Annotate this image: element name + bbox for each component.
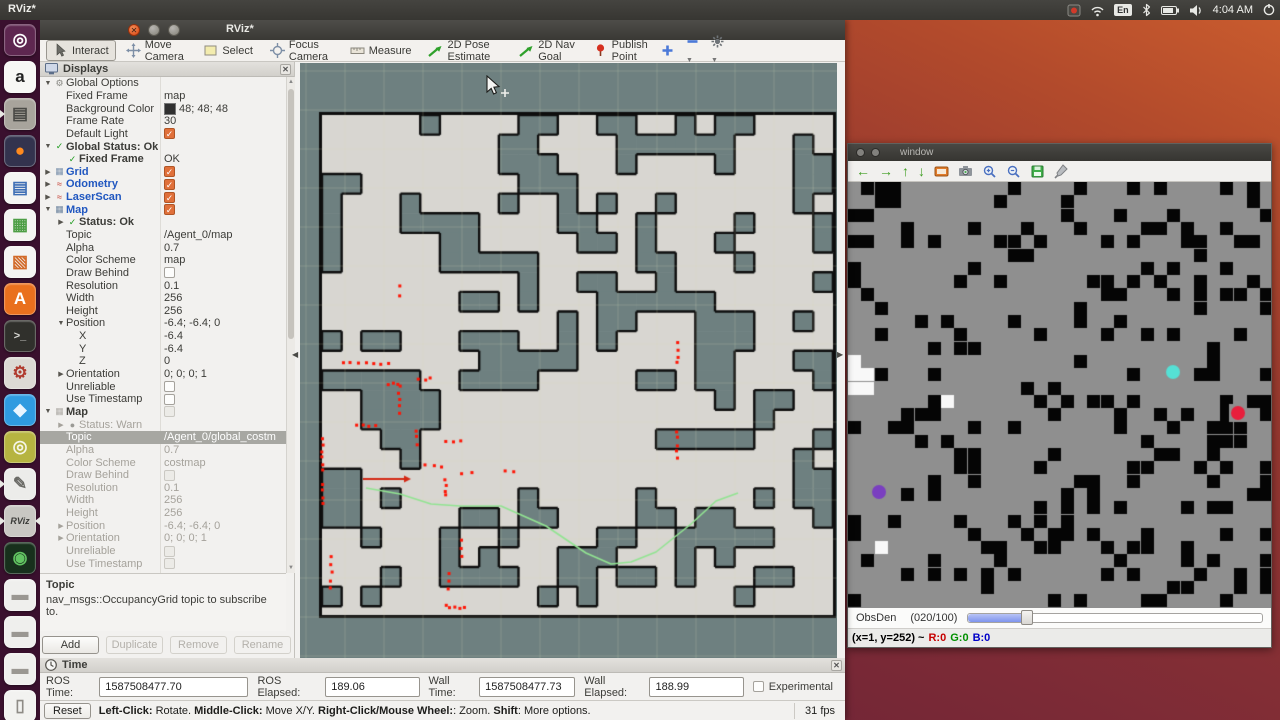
- experimental-label: Experimental: [769, 681, 833, 693]
- value-text: 256: [164, 494, 182, 506]
- left-arrow-icon[interactable]: ←: [856, 164, 870, 178]
- displays-panel-header[interactable]: Displays ✕: [40, 62, 294, 77]
- camera-lens-icon: ◉: [4, 542, 36, 574]
- tool-publish-point[interactable]: Publish Point: [586, 36, 657, 66]
- obsden-slider-fill: [968, 614, 1027, 622]
- value-text: map: [164, 254, 185, 266]
- ros-time-input[interactable]: 1587508477.70: [99, 677, 248, 697]
- launcher-item-files[interactable]: ▤: [3, 97, 37, 131]
- displays-panel-title: Displays: [63, 63, 108, 75]
- tree-row-fixed-frame[interactable]: ✓Fixed FrameOK: [40, 153, 286, 166]
- launcher-item-libreoffice-calc[interactable]: ▦: [3, 208, 37, 242]
- rviz-window: ✕ RViz* InteractMove CameraSelectFocus C…: [40, 20, 845, 720]
- launcher-item-disk-drive-1[interactable]: ▬: [3, 578, 37, 612]
- property-label: Default Light: [66, 128, 128, 140]
- property-label: Orientation: [66, 532, 120, 544]
- cv-window-button-2[interactable]: [871, 148, 880, 157]
- pose-estimate-icon: [428, 43, 443, 58]
- rename-button: Rename: [234, 636, 291, 654]
- value-text: 0; 0; 0; 1: [164, 532, 207, 544]
- check-icon: ✓: [66, 154, 79, 165]
- property-label: LaserScan: [66, 191, 122, 203]
- property-label: Topic: [66, 229, 92, 241]
- checkbox-checked[interactable]: ✓: [164, 204, 175, 215]
- displays-panel: Displays ✕ ▼⚙Global OptionsFixed Framema…: [40, 62, 295, 678]
- help-segment: Move X/Y.: [263, 705, 318, 717]
- tree-row-alpha[interactable]: Alpha0.7: [40, 444, 286, 457]
- expander-open-icon[interactable]: ▼: [43, 80, 53, 87]
- launcher-item-disk-drive-3[interactable]: ▬: [3, 652, 37, 686]
- property-label: Map: [66, 406, 88, 418]
- tree-row-status-ok[interactable]: ▶✓Status: Ok: [40, 216, 286, 229]
- tree-row-unreliable[interactable]: Unreliable: [40, 545, 286, 558]
- property-value[interactable]: map: [164, 254, 185, 266]
- disk-drive-1-icon: ▬: [4, 579, 36, 611]
- property-value[interactable]: map: [164, 90, 185, 102]
- value-text: 30: [164, 115, 176, 127]
- value-text: 0.7: [164, 444, 179, 456]
- tool-label: Focus Camera: [289, 39, 333, 63]
- tool-pose-estimate[interactable]: 2D Pose Estimate: [421, 36, 509, 66]
- pixel-red-value: R:0: [928, 632, 946, 644]
- value-text: 0: [164, 355, 170, 367]
- tree-row-height[interactable]: Height256: [40, 507, 286, 520]
- launcher-item-vscode[interactable]: ◆: [3, 393, 37, 427]
- obsden-slider-handle[interactable]: [1021, 610, 1033, 625]
- value-text: -6.4: [164, 343, 183, 355]
- checkbox-disabled: [164, 546, 175, 557]
- time-fields-row: ROS Time:1587508477.70ROS Elapsed:189.06…: [40, 673, 845, 700]
- zoom-in-icon[interactable]: [982, 164, 997, 179]
- time-panel: Time ✕ ROS Time:1587508477.70ROS Elapsed…: [40, 658, 845, 700]
- map-icon: ▦: [53, 204, 66, 215]
- pixel-blue-value: B:0: [973, 632, 991, 644]
- tree-row-orientation[interactable]: ▶Orientation0; 0; 0; 1: [40, 532, 286, 545]
- tool-label: Select: [222, 45, 253, 57]
- tool-nav-goal[interactable]: 2D Nav Goal: [512, 36, 582, 66]
- interact-icon: [53, 43, 68, 58]
- ubuntu-software-icon: A: [4, 283, 36, 315]
- tree-row-topic[interactable]: Topic/Agent_0/global_costm: [40, 431, 286, 444]
- expander-closed-icon[interactable]: ▶: [56, 522, 66, 530]
- property-value[interactable]: 0.1: [164, 280, 179, 292]
- running-indicator: [0, 517, 5, 525]
- property-help-box: Topic nav_msgs::OccupancyGrid topic to s…: [40, 573, 286, 631]
- trash-icon: ▯: [4, 690, 36, 720]
- wall-time-input[interactable]: 1587508477.73: [479, 677, 575, 697]
- remove-button: Remove: [170, 636, 227, 654]
- expander-open-icon[interactable]: ▼: [56, 320, 66, 327]
- property-label: Width: [66, 494, 94, 506]
- property-value[interactable]: [164, 406, 175, 417]
- property-label: Width: [66, 292, 94, 304]
- tool-focus-camera[interactable]: Focus Camera: [263, 36, 340, 66]
- property-value[interactable]: 256: [164, 292, 182, 304]
- ubuntu-dash-icon: ◎: [4, 24, 36, 56]
- property-label: Use Timestamp: [66, 558, 142, 570]
- cv-toolbar: ←→↑↓: [848, 161, 1271, 182]
- maximize-button[interactable]: [168, 24, 180, 36]
- property-value[interactable]: [164, 381, 175, 392]
- checkbox-unchecked[interactable]: [164, 394, 175, 405]
- clock-icon: [44, 658, 58, 672]
- property-value[interactable]: 0.7: [164, 242, 179, 254]
- value-text: 0; 0; 0; 1: [164, 368, 207, 380]
- duplicate-button: Duplicate: [106, 636, 163, 654]
- tree-row-map[interactable]: ▼▦Map✓: [40, 203, 286, 216]
- tree-row-default-light[interactable]: Default Light✓: [40, 128, 286, 141]
- expander-closed-icon[interactable]: ▶: [43, 180, 53, 188]
- tree-row-frame-rate[interactable]: Frame Rate30: [40, 115, 286, 128]
- expander-open-icon[interactable]: ▼: [43, 206, 53, 213]
- checkbox-checked[interactable]: ✓: [164, 166, 175, 177]
- property-value[interactable]: -6.4; -6.4; 0: [164, 520, 220, 532]
- launcher-item-libreoffice-writer[interactable]: ▤: [3, 171, 37, 205]
- ros-time-label: ROS Time:: [46, 675, 95, 699]
- ros-elapsed-input[interactable]: 189.06: [325, 677, 419, 697]
- expander-closed-icon[interactable]: ▶: [56, 534, 66, 542]
- running-indicator: [0, 110, 5, 118]
- global-menu-app-title[interactable]: RViz*: [8, 3, 36, 15]
- value-text: /Agent_0/map: [164, 229, 233, 241]
- cv-window: window ←→↑↓ ObsDen (020/100) (x=1, y=252…: [847, 143, 1272, 648]
- expander-closed-icon[interactable]: ▶: [56, 218, 66, 226]
- property-label: Alpha: [66, 444, 94, 456]
- disk-drive-3-icon: ▬: [4, 653, 36, 685]
- files-icon: ▤: [4, 98, 36, 130]
- property-value[interactable]: /Agent_0/map: [164, 229, 233, 241]
- keyboard-layout-indicator[interactable]: En: [1114, 4, 1132, 16]
- color-value-text: 48; 48; 48: [179, 103, 228, 115]
- nav-goal-icon: [519, 43, 534, 58]
- tree-row-x[interactable]: X-6.4: [40, 330, 286, 343]
- unity-top-panel: RViz* En 4:04 AM: [0, 0, 1280, 20]
- property-value[interactable]: [164, 267, 175, 278]
- cv-status-bar: (x=1, y=252) ~ R:0 G:0 B:0: [848, 628, 1271, 647]
- tree-row-status-warn[interactable]: ▶●Status: Warn: [40, 418, 286, 431]
- select-icon: [203, 43, 218, 58]
- wall-time-label: Wall Time:: [429, 675, 476, 699]
- tree-row-resolution[interactable]: Resolution0.1: [40, 482, 286, 495]
- property-label: Resolution: [66, 280, 118, 292]
- checkbox-checked[interactable]: ✓: [164, 128, 175, 139]
- battery-icon[interactable]: [1161, 5, 1180, 16]
- scroll-down-icon[interactable]: ▼: [287, 565, 295, 571]
- measure-icon: [350, 43, 365, 58]
- property-label: Position: [66, 317, 105, 329]
- property-label: Height: [66, 507, 98, 519]
- screenshot-tool-icon: ◎: [4, 431, 36, 463]
- help-segment: Shift: [493, 705, 517, 717]
- save-icon[interactable]: [1030, 164, 1045, 179]
- zoom-out-icon[interactable]: [1006, 164, 1021, 179]
- dock-collapse-left-icon[interactable]: ◀: [292, 350, 298, 359]
- 3d-viewport[interactable]: [300, 63, 837, 659]
- value-text: 256: [164, 292, 182, 304]
- tree-row-position[interactable]: ▶Position-6.4; -6.4; 0: [40, 519, 286, 532]
- rviz-icon: RViz: [4, 505, 36, 537]
- launcher-item-system-settings[interactable]: ⚙: [3, 356, 37, 390]
- property-label: Unreliable: [66, 545, 116, 557]
- brush-icon[interactable]: [1054, 164, 1069, 179]
- tree-row-global-status-ok[interactable]: ▼✓Global Status: Ok: [40, 140, 286, 153]
- tree-row-map[interactable]: ▼▦Map: [40, 406, 286, 419]
- property-label: Map: [66, 204, 88, 216]
- property-value[interactable]: OK: [164, 153, 180, 165]
- property-value[interactable]: ✓: [164, 179, 175, 190]
- property-label: Draw Behind: [66, 469, 129, 481]
- cv-window-button-1[interactable]: [856, 148, 865, 157]
- expander-closed-icon[interactable]: ▶: [43, 168, 53, 176]
- add-button[interactable]: Add: [42, 636, 99, 654]
- time-panel-title: Time: [62, 659, 87, 671]
- launcher-item-disk-drive-2[interactable]: ▬: [3, 615, 37, 649]
- checkbox-unchecked[interactable]: [164, 381, 175, 392]
- property-value[interactable]: /Agent_0/global_costm: [164, 431, 276, 443]
- bluetooth-icon[interactable]: [1141, 3, 1152, 17]
- tree-row-global-options[interactable]: ▼⚙Global Options: [40, 77, 286, 90]
- tree-row-height[interactable]: Height256: [40, 305, 286, 318]
- property-value[interactable]: 256: [164, 305, 182, 317]
- tree-row-resolution[interactable]: Resolution0.1: [40, 279, 286, 292]
- launcher-item-camera-lens[interactable]: ◉: [3, 541, 37, 575]
- gear-icon: ⚙: [53, 78, 66, 89]
- tree-row-position[interactable]: ▼Position-6.4; -6.4; 0: [40, 317, 286, 330]
- launcher-item-trash[interactable]: ▯: [3, 689, 37, 720]
- obsden-slider-track[interactable]: [967, 613, 1263, 623]
- text-editor-icon: ✎: [4, 468, 36, 500]
- expander-open-icon[interactable]: ▼: [43, 143, 53, 150]
- pixel-green-value: G:0: [950, 632, 968, 644]
- expander-open-icon[interactable]: ▼: [43, 408, 53, 415]
- property-value[interactable]: 0.7: [164, 444, 179, 456]
- mouse-cursor: [485, 75, 511, 101]
- tree-row-color-scheme[interactable]: Color Schemecostmap: [40, 456, 286, 469]
- up-arrow-icon[interactable]: ↑: [902, 164, 909, 178]
- property-value[interactable]: 30: [164, 115, 176, 127]
- tool-label: Move Camera: [145, 39, 187, 63]
- property-label: Unreliable: [66, 381, 116, 393]
- property-value[interactable]: 256: [164, 494, 182, 506]
- property-value[interactable]: 0; 0; 0; 1: [164, 532, 207, 544]
- value-text: 0.1: [164, 482, 179, 494]
- experimental-checkbox[interactable]: [753, 681, 764, 692]
- property-value[interactable]: -6.4: [164, 343, 183, 355]
- launcher-item-amazon[interactable]: a: [3, 60, 37, 94]
- expander-closed-icon[interactable]: ▶: [56, 421, 66, 429]
- property-value[interactable]: -6.4: [164, 330, 183, 342]
- property-label: Global Options: [66, 77, 139, 89]
- tool-label: 2D Pose Estimate: [447, 39, 502, 63]
- displays-close-icon[interactable]: ✕: [280, 64, 291, 75]
- terminal-icon: >_: [4, 320, 36, 352]
- obsden-value: (020/100): [910, 612, 957, 624]
- mapg-icon: ▦: [53, 406, 66, 417]
- property-value[interactable]: 256: [164, 507, 182, 519]
- property-label: Resolution: [66, 482, 118, 494]
- tree-row-alpha[interactable]: Alpha0.7: [40, 241, 286, 254]
- launcher-item-terminal[interactable]: >_: [3, 319, 37, 353]
- tree-row-z[interactable]: Z0: [40, 355, 286, 368]
- rviz-status-bar: Reset Left-Click: Rotate. Middle-Click: …: [40, 700, 845, 720]
- laser-icon: ≈: [53, 192, 66, 202]
- tree-row-laserscan[interactable]: ▶≈LaserScan✓: [40, 191, 286, 204]
- property-value[interactable]: ✓: [164, 204, 175, 215]
- property-label: Orientation: [66, 368, 120, 380]
- checkbox-disabled: [164, 470, 175, 481]
- obsden-slider-row: ObsDen (020/100): [848, 608, 1271, 628]
- tool-move-camera[interactable]: Move Camera: [119, 36, 194, 66]
- property-value[interactable]: -6.4; -6.4; 0: [164, 317, 220, 329]
- property-label: Frame Rate: [66, 115, 124, 127]
- pixel-coords: (x=1, y=252) ~: [852, 632, 924, 644]
- vscode-icon: ◆: [4, 394, 36, 426]
- move-camera-icon: [126, 43, 141, 58]
- cv-window-titlebar[interactable]: window: [848, 144, 1271, 161]
- property-label: Grid: [66, 166, 89, 178]
- wall-elapsed-label: Wall Elapsed:: [584, 675, 645, 699]
- checkbox-checked[interactable]: ✓: [164, 179, 175, 190]
- tree-row-color-scheme[interactable]: Color Schememap: [40, 254, 286, 267]
- expander-closed-icon[interactable]: ▶: [43, 193, 53, 201]
- property-value[interactable]: 0; 0; 0; 1: [164, 368, 207, 380]
- warn-icon: ●: [66, 420, 79, 430]
- camera-icon[interactable]: [958, 164, 973, 179]
- tree-row-use-timestamp[interactable]: Use Timestamp: [40, 557, 286, 570]
- checkbox-unchecked[interactable]: [164, 267, 175, 278]
- property-label: Color Scheme: [66, 457, 136, 469]
- property-value[interactable]: [164, 470, 175, 481]
- launcher-item-text-editor[interactable]: ✎: [3, 467, 37, 501]
- displays-buttons-row: AddDuplicateRemoveRename: [42, 636, 292, 654]
- tree-row-fixed-frame[interactable]: Fixed Framemap: [40, 90, 286, 103]
- screen-record-icon[interactable]: [1067, 4, 1081, 17]
- launcher-item-libreoffice-impress[interactable]: ▧: [3, 245, 37, 279]
- tree-row-draw-behind[interactable]: Draw Behind: [40, 469, 286, 482]
- property-label: Fixed Frame: [66, 90, 128, 102]
- value-text: -6.4: [164, 330, 183, 342]
- property-label: Draw Behind: [66, 267, 129, 279]
- volume-icon[interactable]: [1189, 4, 1204, 17]
- tree-row-draw-behind[interactable]: Draw Behind: [40, 267, 286, 280]
- tool-select[interactable]: Select: [196, 40, 260, 61]
- tree-row-width[interactable]: Width256: [40, 292, 286, 305]
- tree-row-topic[interactable]: Topic/Agent_0/map: [40, 229, 286, 242]
- reset-button[interactable]: Reset: [44, 703, 91, 719]
- property-value[interactable]: 0: [164, 355, 170, 367]
- session-gear-icon[interactable]: [1262, 3, 1276, 17]
- time-close-icon[interactable]: ✕: [831, 660, 842, 671]
- launcher-item-rviz[interactable]: RViz: [3, 504, 37, 538]
- property-label: Height: [66, 305, 98, 317]
- fps-counter: 31 fps: [794, 703, 845, 719]
- property-label: Global Status: Ok: [66, 141, 158, 153]
- displays-scrollbar[interactable]: ▲ ▼: [286, 77, 295, 573]
- scrollbar-thumb[interactable]: [288, 89, 294, 339]
- tree-row-unreliable[interactable]: Unreliable: [40, 380, 286, 393]
- tool-label: Publish Point: [612, 39, 650, 63]
- property-value[interactable]: ✓: [164, 166, 175, 177]
- system-settings-icon: ⚙: [4, 357, 36, 389]
- rviz-window-title: RViz*: [226, 23, 254, 35]
- image-icon[interactable]: [934, 164, 949, 179]
- tree-row-width[interactable]: Width256: [40, 494, 286, 507]
- wifi-icon[interactable]: [1090, 4, 1105, 17]
- expander-closed-icon[interactable]: ▶: [56, 370, 66, 378]
- property-value[interactable]: 48; 48; 48: [164, 103, 228, 115]
- tree-row-y[interactable]: Y-6.4: [40, 342, 286, 355]
- tool-interact[interactable]: Interact: [46, 40, 116, 61]
- color-swatch: [164, 103, 176, 115]
- obsden-label: ObsDen: [856, 612, 896, 624]
- value-text: -6.4; -6.4; 0: [164, 520, 220, 532]
- property-value[interactable]: costmap: [164, 457, 206, 469]
- right-arrow-icon[interactable]: →: [879, 164, 893, 178]
- property-label: Z: [79, 355, 86, 367]
- property-label: Y: [79, 343, 86, 355]
- launcher-item-screenshot-tool[interactable]: ◎: [3, 430, 37, 464]
- property-value[interactable]: [164, 394, 175, 405]
- dock-collapse-right-icon[interactable]: ▶: [837, 350, 843, 359]
- tree-row-use-timestamp[interactable]: Use Timestamp: [40, 393, 286, 406]
- value-text: -6.4; -6.4; 0: [164, 317, 220, 329]
- scroll-up-icon[interactable]: ▲: [287, 79, 295, 85]
- value-text: costmap: [164, 457, 206, 469]
- wall-elapsed-input[interactable]: 188.99: [649, 677, 743, 697]
- property-value[interactable]: [164, 546, 175, 557]
- tool-measure[interactable]: Measure: [343, 40, 419, 61]
- tree-row-background-color[interactable]: Background Color48; 48; 48: [40, 102, 286, 115]
- property-label: Alpha: [66, 242, 94, 254]
- property-value[interactable]: ✓: [164, 192, 175, 203]
- tool-label: Measure: [369, 45, 412, 57]
- minimize-button[interactable]: [148, 24, 160, 36]
- checkbox-checked[interactable]: ✓: [164, 192, 175, 203]
- launcher-item-firefox[interactable]: ●: [3, 134, 37, 168]
- occupancy-grid-canvas[interactable]: [848, 182, 1271, 608]
- value-text: 256: [164, 507, 182, 519]
- tree-row-orientation[interactable]: ▶Orientation0; 0; 0; 1: [40, 368, 286, 381]
- experimental-group: Experimental: [753, 681, 845, 693]
- tree-row-odometry[interactable]: ▶≈Odometry✓: [40, 178, 286, 191]
- property-value[interactable]: 0.1: [164, 482, 179, 494]
- grid-icon: ▦: [53, 166, 66, 177]
- clock-indicator[interactable]: 4:04 AM: [1213, 4, 1253, 16]
- property-label: Fixed Frame: [79, 153, 144, 165]
- launcher-item-ubuntu-software[interactable]: A: [3, 282, 37, 316]
- time-panel-header[interactable]: Time ✕: [40, 658, 845, 673]
- tree-row-grid[interactable]: ▶▦Grid✓: [40, 165, 286, 178]
- property-value[interactable]: ✓: [164, 128, 175, 139]
- property-value[interactable]: [164, 558, 175, 569]
- down-arrow-icon[interactable]: ↓: [918, 164, 925, 178]
- value-text: /Agent_0/global_costm: [164, 431, 276, 443]
- value-text: OK: [164, 153, 180, 165]
- screen: window ←→↑↓ ObsDen (020/100) (x=1, y=252…: [0, 0, 1280, 720]
- add-tool-button[interactable]: [660, 43, 675, 58]
- checkbox-disabled: [164, 406, 175, 417]
- disk-drive-2-icon: ▬: [4, 616, 36, 648]
- launcher-item-ubuntu-dash[interactable]: ◎: [3, 23, 37, 57]
- property-label: Status: Ok: [79, 216, 134, 228]
- property-label: Status: Warn: [79, 419, 142, 431]
- close-button[interactable]: ✕: [128, 24, 140, 36]
- help-segment: Rotate.: [153, 705, 195, 717]
- help-segment: Right-Click/Mouse Wheel:: [318, 705, 453, 717]
- help-title: Topic: [46, 579, 280, 591]
- libreoffice-calc-icon: ▦: [4, 209, 36, 241]
- mouse-help-text: Left-Click: Rotate. Middle-Click: Move X…: [99, 705, 591, 717]
